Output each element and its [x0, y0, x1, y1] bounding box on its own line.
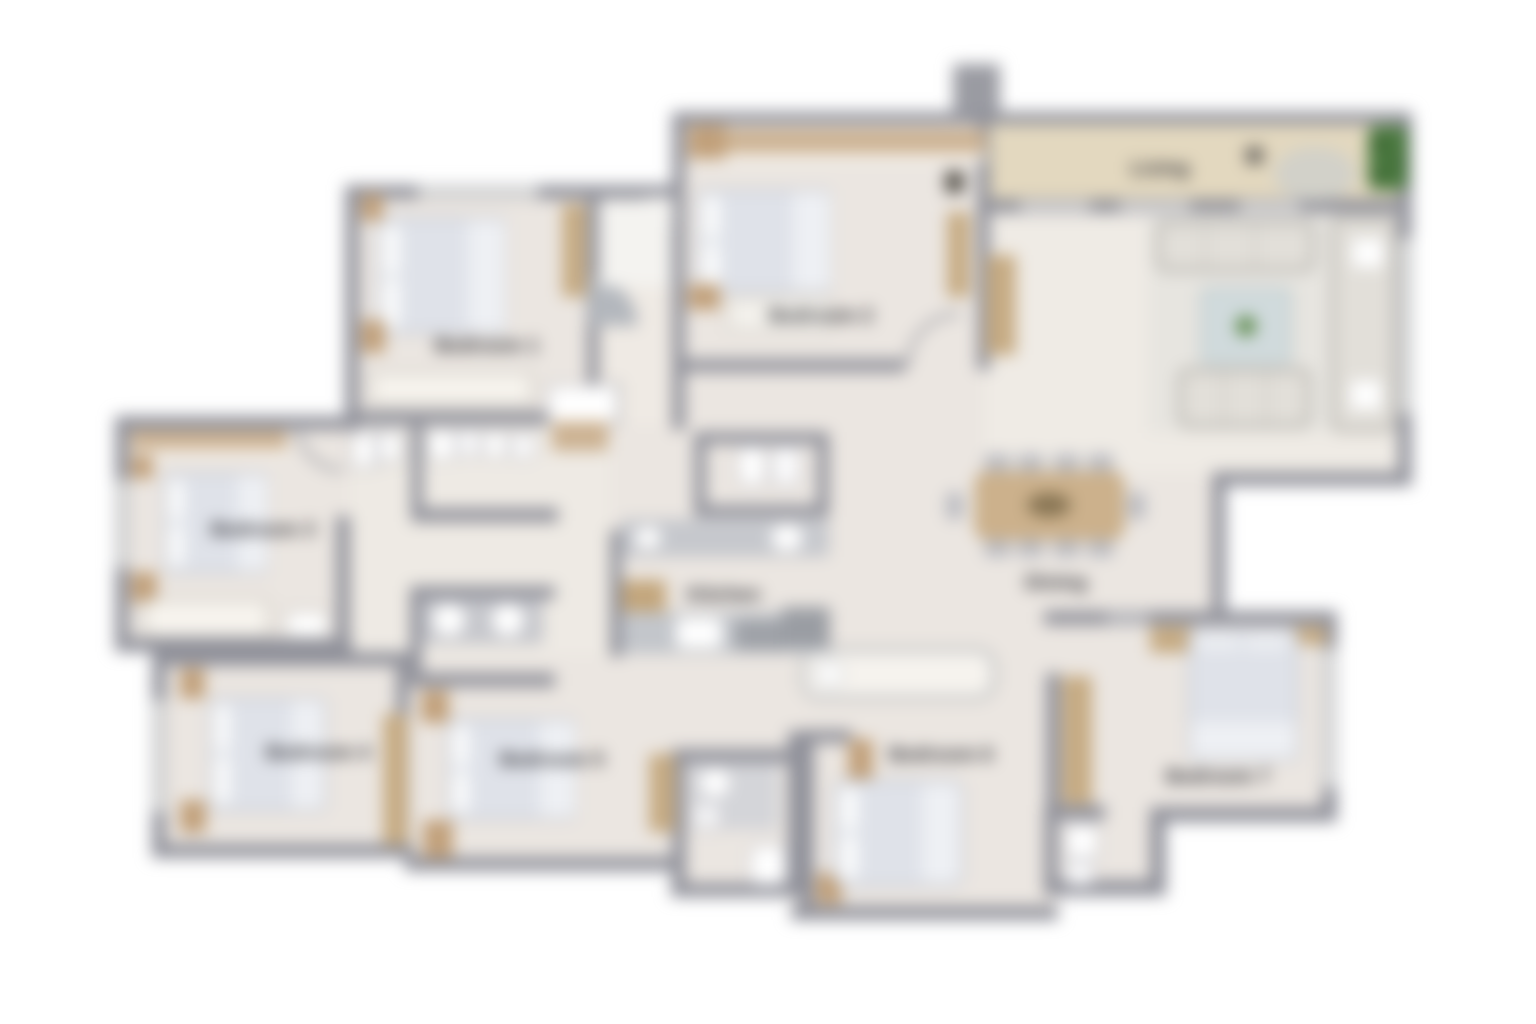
svg-text:Bedroom 5: Bedroom 5 — [500, 749, 604, 771]
svg-text:Bedroom 6: Bedroom 6 — [889, 744, 993, 766]
svg-text:Bedroom 2: Bedroom 2 — [769, 305, 873, 327]
svg-text:Dining: Dining — [1025, 572, 1087, 594]
svg-text:Bedroom 1: Bedroom 1 — [435, 335, 539, 357]
svg-text:Bedroom 3: Bedroom 3 — [211, 519, 315, 541]
svg-text:Bedroom 7: Bedroom 7 — [1166, 766, 1270, 788]
svg-text:Living: Living — [1131, 158, 1190, 180]
svg-text:Kitchen: Kitchen — [687, 584, 760, 606]
svg-text:Bedroom 4: Bedroom 4 — [266, 742, 371, 764]
